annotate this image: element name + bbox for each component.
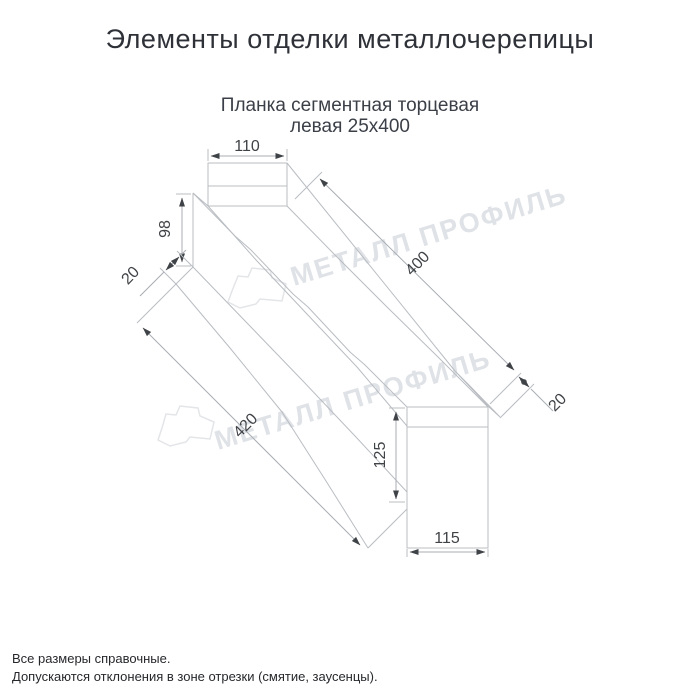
far-end-web-edge (176, 193, 208, 284)
metall-profil-logo-icon (228, 268, 286, 308)
near-bottom-flange-end-edge (368, 509, 407, 548)
dim-label-110: 110 (234, 138, 260, 155)
dimension-115: 115 (407, 530, 488, 557)
drawing-page: Элементы отделки металлочерепицы Планка … (0, 0, 700, 700)
near-tip-hem (455, 371, 500, 417)
watermark-bottom: МЕТАЛЛ ПРОФИЛЬ (158, 343, 495, 456)
dim-label-20-far: 20 (118, 263, 143, 288)
dim-label-115: 115 (434, 530, 460, 547)
dim-label-20-near: 20 (546, 390, 571, 415)
metall-profil-logo-icon (158, 406, 214, 446)
far-end-flange-face (208, 163, 287, 206)
footnote-line1: Все размеры справочные. (12, 650, 378, 668)
footnote-line2: Допускаются отклонения в зоне отрезки (с… (12, 668, 378, 686)
watermark-top: МЕТАЛЛ ПРОФИЛЬ (228, 179, 571, 308)
technical-drawing: МЕТАЛЛ ПРОФИЛЬ МЕТАЛЛ ПРОФИЛЬ (0, 0, 700, 700)
footnotes: Все размеры справочные. Допускаются откл… (12, 650, 378, 686)
dim-label-98: 98 (157, 220, 174, 238)
watermark-text: МЕТАЛЛ ПРОФИЛЬ (287, 179, 571, 292)
dimension-125: 125 (372, 408, 405, 502)
dim-label-125: 125 (372, 442, 389, 469)
dimension-110: 110 (208, 138, 287, 161)
near-end-face (407, 407, 488, 548)
dimension-98: 98 (157, 194, 191, 266)
